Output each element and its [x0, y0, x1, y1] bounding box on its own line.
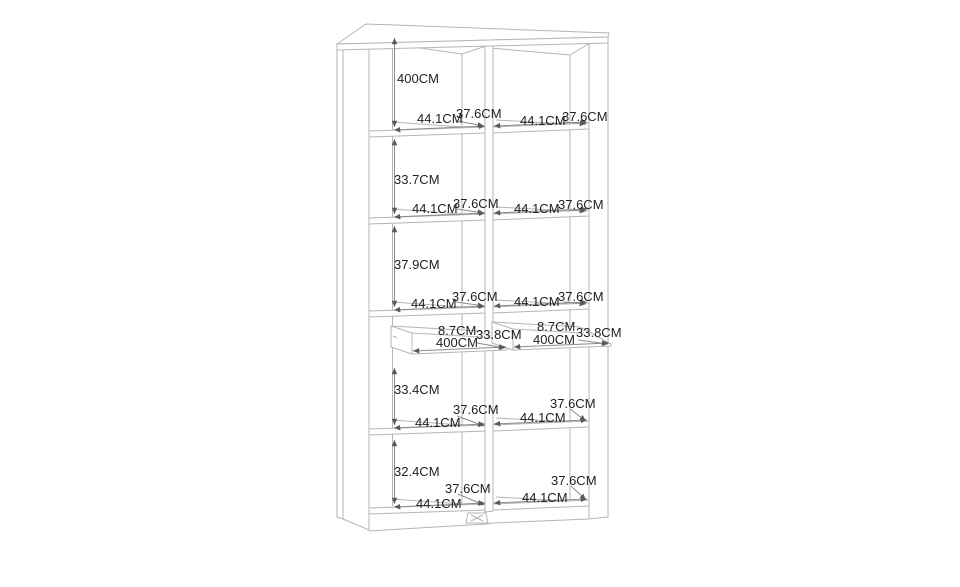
center-divider [485, 45, 493, 512]
right-side-panel [589, 41, 608, 519]
interior-back-lines [369, 43, 590, 506]
left-side-panel [337, 44, 369, 530]
cabinet-line-drawing [0, 0, 960, 587]
shelves [369, 120, 589, 514]
base [369, 513, 589, 531]
dimension-lines [394, 38, 609, 507]
top-board [337, 24, 609, 50]
diagram-stage: 400CM44.1CM37.6CM44.1CM37.6CM33.7CM44.1C… [0, 0, 960, 587]
